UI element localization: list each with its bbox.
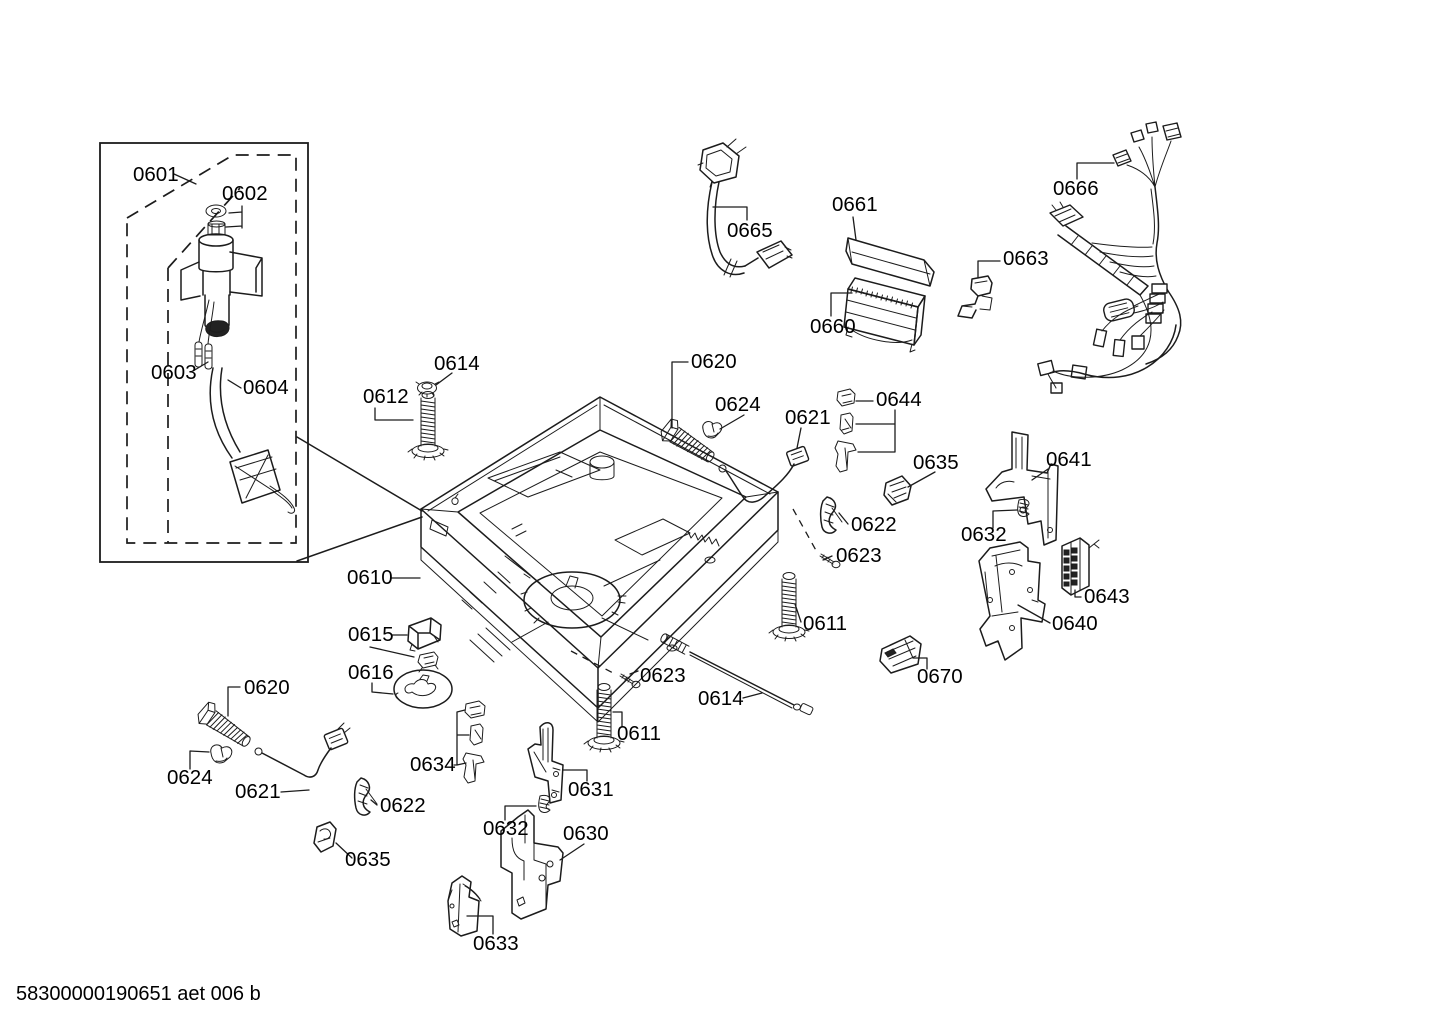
- callout-0635-mid: 0635: [913, 451, 959, 474]
- hook-0622-bottom: [355, 778, 377, 815]
- callout-0633: 0633: [473, 932, 519, 955]
- part-0616: [394, 670, 452, 708]
- callout-0640: 0640: [1052, 612, 1098, 635]
- exploded-parts-diagram: 0601 0602 0603 0604 0665 0661 0660 0663 …: [0, 0, 1442, 1019]
- callout-0620-bottom: 0620: [244, 676, 290, 699]
- callout-0624-top: 0624: [715, 393, 761, 416]
- callout-0665: 0665: [727, 219, 773, 242]
- callout-0622-bottom: 0622: [380, 794, 426, 817]
- part-0615: [408, 618, 441, 672]
- callout-0630: 0630: [563, 822, 609, 845]
- callout-0601: 0601: [133, 163, 179, 186]
- callout-0621-bottom: 0621: [235, 780, 281, 803]
- callout-0635-bottom: 0635: [345, 848, 391, 871]
- callout-0621-top: 0621: [785, 406, 831, 429]
- callout-0615: 0615: [348, 623, 394, 646]
- bracket-0633: [448, 876, 481, 936]
- bracket-0640: [979, 542, 1045, 660]
- inset-link-lines: [297, 437, 422, 561]
- clips-0634: [463, 701, 485, 783]
- inset-outer-box: [100, 143, 308, 562]
- callout-0604: 0604: [243, 376, 289, 399]
- aquastop-valve: [181, 205, 262, 369]
- slider-0670: [880, 636, 921, 673]
- callout-0666: 0666: [1053, 177, 1099, 200]
- spindle-0620-bottom: [194, 699, 256, 752]
- nut-0614: [416, 382, 439, 397]
- screw-0623-middle-dash: [571, 651, 617, 675]
- control-module-0660-0661: [844, 238, 934, 352]
- callout-0611-right: 0611: [803, 612, 847, 635]
- callout-0611-mid: 0611: [617, 722, 661, 745]
- valve-inset-group: [100, 143, 308, 562]
- callout-0643: 0643: [1084, 585, 1130, 608]
- callout-0614-mid: 0614: [698, 687, 744, 710]
- grommet-0632-right: [1018, 499, 1029, 516]
- callout-0632-right: 0632: [961, 523, 1007, 546]
- clip-0635-bottom: [314, 822, 336, 852]
- callout-0610: 0610: [347, 566, 393, 589]
- clips-0644: [835, 389, 856, 472]
- callout-0631: 0631: [568, 778, 614, 801]
- callout-0602: 0602: [222, 182, 268, 205]
- callout-0623-mid: 0623: [640, 664, 686, 687]
- callout-0670: 0670: [917, 665, 963, 688]
- clip-0663: [958, 276, 992, 318]
- diagram-canvas: 0601 0602 0603 0604 0665 0661 0660 0663 …: [0, 0, 1442, 1019]
- callout-0620-top: 0620: [691, 350, 737, 373]
- hook-0622-middle: [821, 497, 842, 533]
- callout-0644: 0644: [876, 388, 922, 411]
- hinge-0631: [528, 723, 563, 803]
- callout-0663: 0663: [1003, 247, 1049, 270]
- clip-0624-bottom: [211, 745, 232, 763]
- clip-0624-top: [703, 422, 722, 438]
- callout-0634: 0634: [410, 753, 456, 776]
- cable-0621-bottom: [255, 723, 350, 777]
- callout-0641: 0641: [1046, 448, 1092, 471]
- screw-0623-right-dash: [793, 509, 818, 554]
- foot-0612: [408, 392, 448, 461]
- callout-0623-right: 0623: [836, 544, 882, 567]
- callout-0603: 0603: [151, 361, 197, 384]
- grommet-0632-bottom: [539, 795, 550, 812]
- callout-0632-bottom: 0632: [483, 817, 529, 840]
- clip-0635-middle: [884, 476, 911, 505]
- document-number: 58300000190651 aet 006 b: [16, 983, 261, 1005]
- callout-0612: 0612: [363, 385, 409, 408]
- callout-0622-mid: 0622: [851, 513, 897, 536]
- callout-0661: 0661: [832, 193, 878, 216]
- callout-0616: 0616: [348, 661, 394, 684]
- callout-0624-bottom: 0624: [167, 766, 213, 789]
- callout-0614-top: 0614: [434, 352, 480, 375]
- callout-0660: 0660: [810, 315, 856, 338]
- power-cord-0665: [698, 139, 792, 277]
